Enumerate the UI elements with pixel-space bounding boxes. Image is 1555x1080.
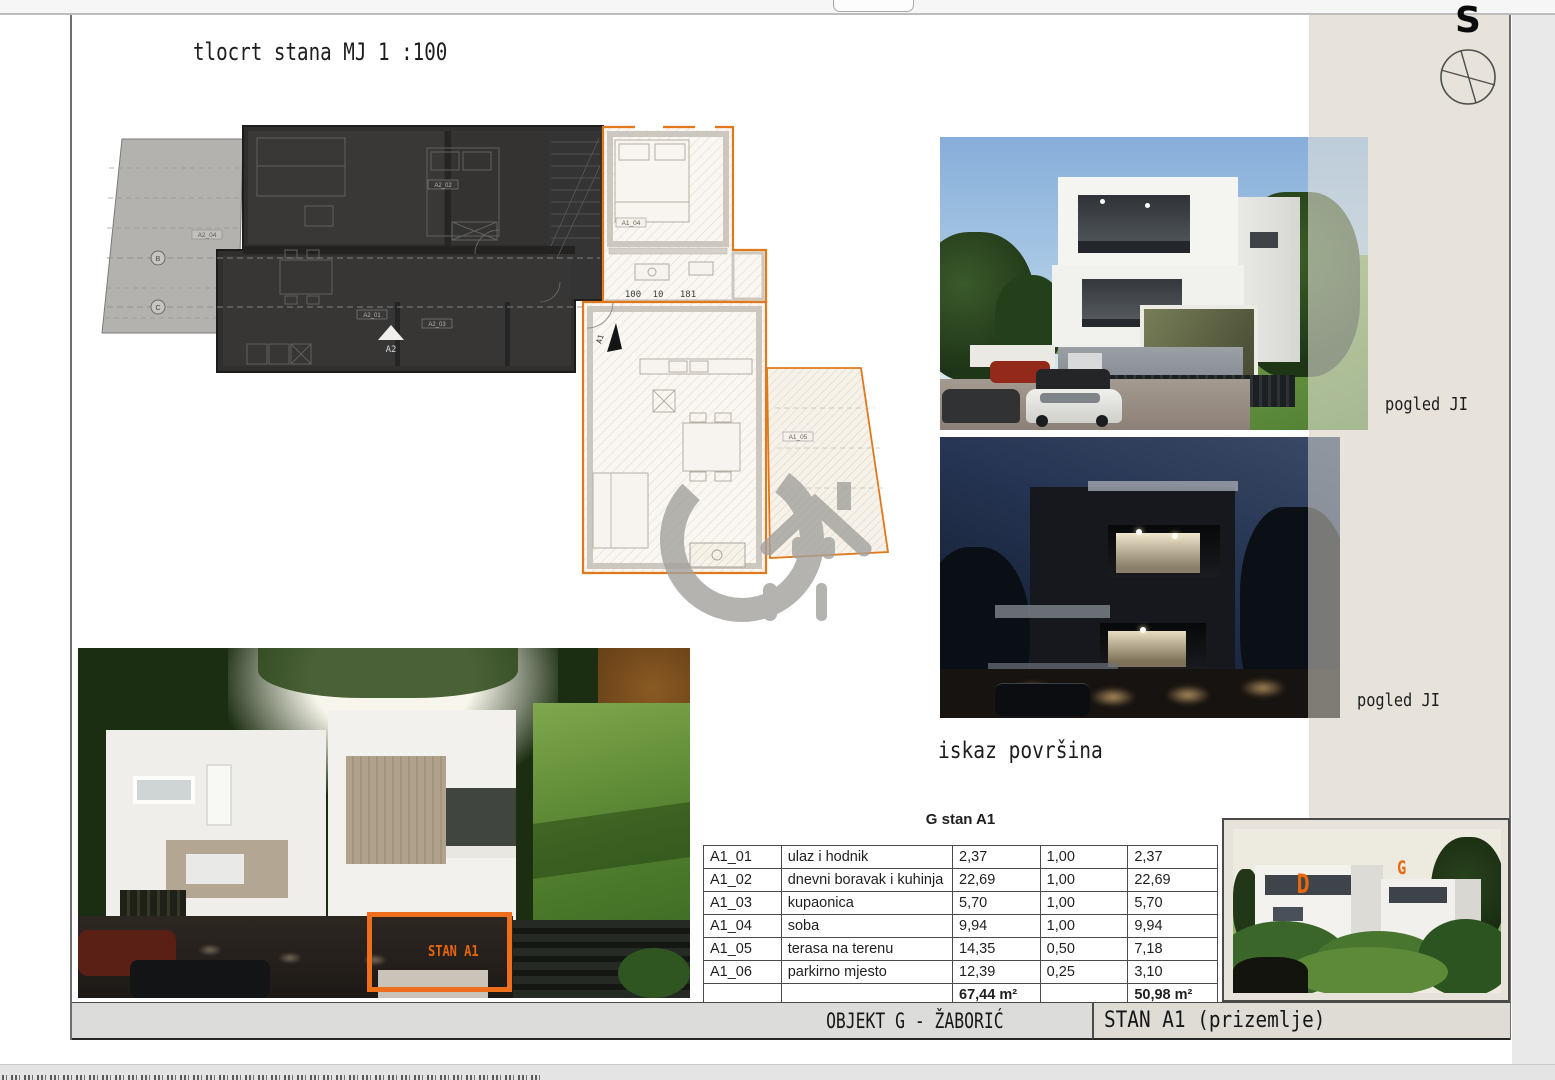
table-cell: 1,00 (1040, 846, 1128, 868)
table-cell: 1,00 (1040, 915, 1128, 937)
table-row: A1_01ulaz i hodnik2,371,002,37 (704, 846, 1217, 868)
table-cell: A1_03 (704, 892, 781, 914)
table-row: A1_06parkirno mjesto12,390,253,10 (704, 960, 1217, 983)
apartment-a1-upper: A1_04 100 10 181 A1_01 (603, 124, 766, 312)
table-cell: ulaz i hodnik (781, 846, 952, 868)
table-cell: 3,10 (1127, 961, 1217, 983)
table-cell: 9,94 (1127, 915, 1217, 937)
table-cell: 14,35 (952, 938, 1040, 960)
canvas-margin-bottom (0, 1064, 1555, 1080)
apartment-a2-plan: A2_02 A2_01 A2_03 A2 (217, 126, 603, 372)
svg-text:A2: A2 (386, 345, 397, 355)
watermark-house-logo (650, 452, 890, 632)
view-label-1: pogled JI (1385, 394, 1483, 415)
table-cell: 5,70 (952, 892, 1040, 914)
svg-text:10: 10 (653, 290, 664, 300)
table-cell: A1_01 (704, 846, 781, 868)
panel-overlap-fade (1308, 137, 1368, 430)
svg-text:A1_04: A1_04 (622, 220, 641, 227)
canvas-margin-right (1512, 15, 1555, 1080)
toolbar-button-fragment[interactable] (833, 0, 914, 12)
clipped-footer-text (2, 1075, 542, 1080)
car-silhouette (995, 683, 1090, 716)
table-cell: A1_05 (704, 938, 781, 960)
car (130, 960, 270, 998)
table-row: A1_04soba9,941,009,94 (704, 914, 1217, 937)
table-cell: 9,94 (952, 915, 1040, 937)
table-cell: 1,00 (1040, 892, 1128, 914)
render-site-view: D G (1233, 829, 1501, 993)
areas-heading: iskaz površina (938, 738, 1132, 764)
north-arrow-symbol: S (1430, 0, 1506, 112)
svg-text:181: 181 (680, 290, 696, 300)
table-cell: 22,69 (952, 869, 1040, 891)
svg-text:A1_05: A1_05 (789, 434, 808, 441)
table-cell: 0,50 (1040, 938, 1128, 960)
table-cell: 5,70 (1127, 892, 1217, 914)
table-cell: 7,18 (1127, 938, 1217, 960)
table-cell: parkirno mjesto (781, 961, 952, 983)
render-main-view: STAN A1 (78, 648, 690, 998)
table-cell: 22,69 (1127, 869, 1217, 891)
sheet-title: tlocrt stana MJ 1 :100 (193, 38, 511, 66)
render-day-view (940, 137, 1368, 430)
north-letter: S (1455, 0, 1481, 41)
table-cell: 0,25 (1040, 961, 1128, 983)
table-cell: 2,37 (1127, 846, 1217, 868)
view-label-2: pogled JI (1357, 690, 1455, 711)
table-cell: kupaonica (781, 892, 952, 914)
svg-text:C: C (155, 305, 160, 312)
render-night-view (940, 437, 1340, 718)
table-cell: terasa na terenu (781, 938, 952, 960)
table-cell: A1_02 (704, 869, 781, 891)
svg-text:A2_03: A2_03 (428, 322, 446, 328)
area-table: A1_01ulaz i hodnik2,371,002,37A1_02dnevn… (703, 845, 1218, 1007)
sheet-border-left (70, 15, 72, 1040)
table-cell: dnevni boravak i kuhinja (781, 869, 952, 891)
lit-balcony (1108, 631, 1186, 667)
table-cell: 12,39 (952, 961, 1040, 983)
table-row: A1_05terasa na terenu14,350,507,18 (704, 937, 1217, 960)
table-cell: 2,37 (952, 846, 1040, 868)
svg-text:A2_04: A2_04 (198, 232, 217, 239)
footer-project-title: OBJEKT G - ŽABORIĆ (72, 1002, 1092, 1040)
table-row: A1_03kupaonica5,701,005,70 (704, 891, 1217, 914)
car (942, 389, 1020, 423)
table-row: A1_02dnevni boravak i kuhinja22,691,0022… (704, 868, 1217, 891)
table-cell: soba (781, 915, 952, 937)
table-cell: A1_04 (704, 915, 781, 937)
footer-unit-title: STAN A1 (prizemlje) (1092, 1002, 1510, 1040)
lit-balcony (1116, 533, 1200, 573)
table-cell: 1,00 (1040, 869, 1128, 891)
panel-overlap-fade (1308, 437, 1340, 718)
table-cell: A1_06 (704, 961, 781, 983)
drawing-sheet-viewer: S tlocrt stana MJ 1 :100 (0, 0, 1555, 1080)
svg-text:A2_02: A2_02 (434, 183, 452, 189)
svg-text:B: B (156, 256, 161, 263)
site-render-box: D G (1222, 818, 1510, 1002)
area-table-title: G stan A1 (703, 811, 1218, 828)
svg-text:100: 100 (625, 290, 641, 300)
svg-text:A2_01: A2_01 (363, 313, 381, 319)
top-toolbar (0, 0, 1555, 15)
